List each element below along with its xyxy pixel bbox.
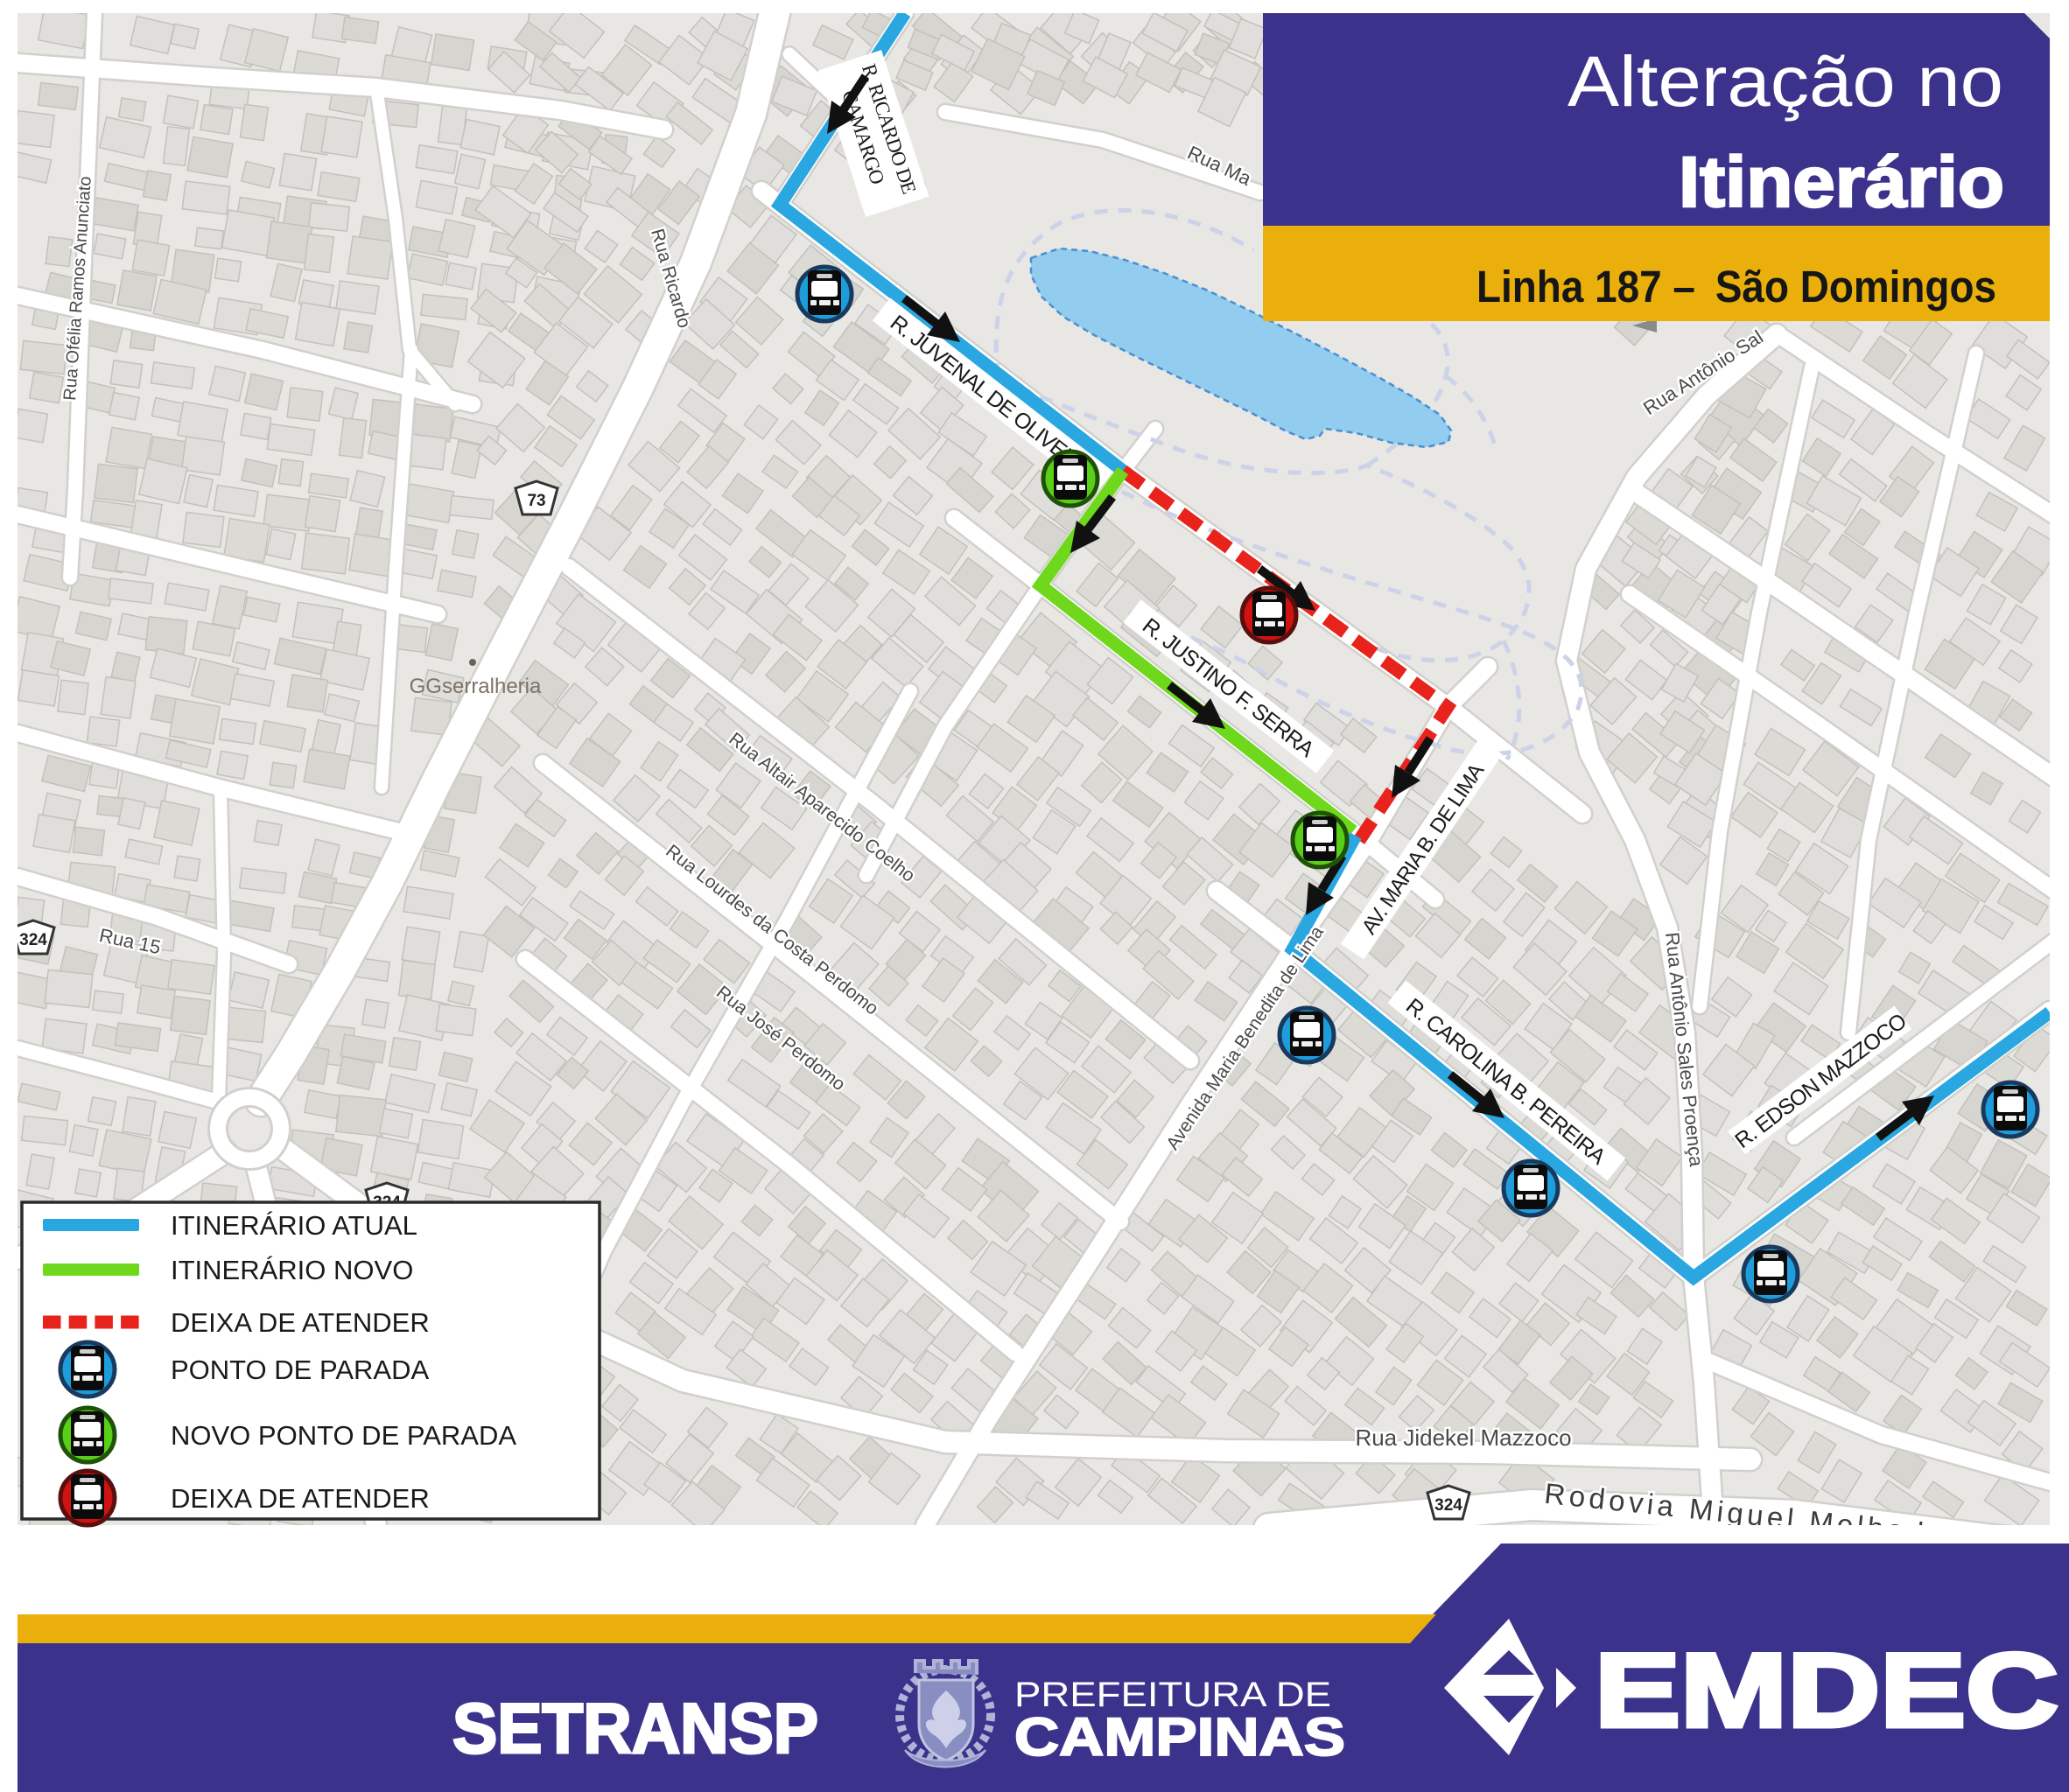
svg-text:Itinerário: Itinerário [1679,143,2004,222]
svg-text:PONTO DE PARADA: PONTO DE PARADA [171,1354,429,1385]
svg-text:NOVO PONTO DE PARADA: NOVO PONTO DE PARADA [171,1420,516,1451]
svg-text:Alteração no: Alteração no [1568,42,2003,122]
svg-text:324: 324 [19,931,47,949]
svg-text:Rua Jidekel Mazzoco: Rua Jidekel Mazzoco [1355,1424,1571,1451]
svg-text:DEIXA DE ATENDER: DEIXA DE ATENDER [171,1483,430,1514]
svg-text:73: 73 [527,492,545,510]
svg-text:324: 324 [1434,1496,1462,1515]
svg-text:Linha 187 – São Domingos: Linha 187 – São Domingos [1476,262,1996,311]
svg-text:SETRANSP: SETRANSP [452,1690,818,1768]
svg-text:ITINERÁRIO ATUAL: ITINERÁRIO ATUAL [171,1210,417,1241]
svg-text:ITINERÁRIO NOVO: ITINERÁRIO NOVO [171,1255,413,1285]
svg-text:CAMPINAS: CAMPINAS [1014,1707,1345,1767]
svg-text:GGserralheria: GGserralheria [410,675,542,698]
svg-text:EMDEC: EMDEC [1595,1632,2058,1749]
svg-text:DEIXA DE ATENDER: DEIXA DE ATENDER [171,1307,430,1338]
